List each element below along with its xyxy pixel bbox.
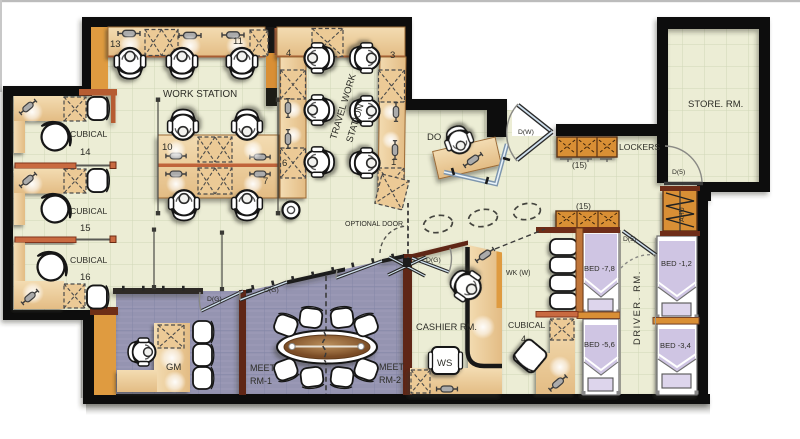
svg-text:BED -5,6: BED -5,6 bbox=[584, 340, 615, 349]
svg-text:CASHIER RM.: CASHIER RM. bbox=[416, 322, 477, 332]
svg-text:(15): (15) bbox=[572, 160, 587, 170]
svg-text:7: 7 bbox=[263, 176, 268, 187]
svg-text:WORK STATION: WORK STATION bbox=[163, 89, 237, 100]
svg-text:11: 11 bbox=[233, 36, 243, 47]
svg-text:15: 15 bbox=[80, 223, 91, 234]
svg-text:GM: GM bbox=[166, 362, 181, 373]
svg-text:1: 1 bbox=[391, 157, 396, 168]
svg-text:LOCKERS: LOCKERS bbox=[619, 142, 660, 152]
svg-text:MEET: MEET bbox=[379, 362, 405, 372]
svg-text:STORE. RM.: STORE. RM. bbox=[688, 99, 743, 110]
svg-text:D(G): D(G) bbox=[207, 296, 222, 303]
svg-text:(15): (15) bbox=[576, 201, 591, 211]
svg-text:BED -7,8: BED -7,8 bbox=[584, 264, 615, 273]
svg-text:14: 14 bbox=[80, 147, 91, 158]
svg-text:6: 6 bbox=[282, 158, 287, 169]
svg-text:13: 13 bbox=[110, 39, 121, 50]
svg-text:CUBICAL: CUBICAL bbox=[70, 129, 107, 139]
svg-text:DRIVER. RM.: DRIVER. RM. bbox=[632, 270, 642, 345]
svg-text:CUBICAL: CUBICAL bbox=[508, 320, 545, 330]
svg-text:BED -3,4: BED -3,4 bbox=[660, 341, 691, 350]
svg-text:D(W): D(W) bbox=[518, 129, 534, 136]
svg-text:WK (W): WK (W) bbox=[506, 270, 531, 277]
svg-text:D(G): D(G) bbox=[426, 257, 441, 264]
svg-text:DO: DO bbox=[427, 132, 441, 143]
svg-text:D(5): D(5) bbox=[672, 169, 685, 176]
svg-text:CUBICAL: CUBICAL bbox=[70, 206, 107, 216]
svg-text:4: 4 bbox=[521, 334, 526, 344]
svg-text:BED -1,2: BED -1,2 bbox=[661, 259, 692, 268]
svg-text:RM-2: RM-2 bbox=[379, 375, 401, 385]
svg-text:16: 16 bbox=[80, 272, 91, 283]
svg-text:4: 4 bbox=[286, 48, 291, 59]
svg-text:MEET: MEET bbox=[250, 363, 276, 373]
svg-text:D(5): D(5) bbox=[623, 236, 636, 243]
svg-text:AHU: AHU bbox=[679, 207, 686, 222]
svg-text:3: 3 bbox=[390, 50, 395, 61]
svg-text:RM-1: RM-1 bbox=[250, 376, 272, 386]
svg-text:WS: WS bbox=[437, 358, 452, 369]
svg-text:OPTIONAL DOOR: OPTIONAL DOOR bbox=[345, 221, 403, 228]
svg-text:CUBICAL: CUBICAL bbox=[70, 255, 107, 265]
svg-text:10: 10 bbox=[162, 142, 173, 153]
svg-text:D(G): D(G) bbox=[264, 287, 279, 294]
